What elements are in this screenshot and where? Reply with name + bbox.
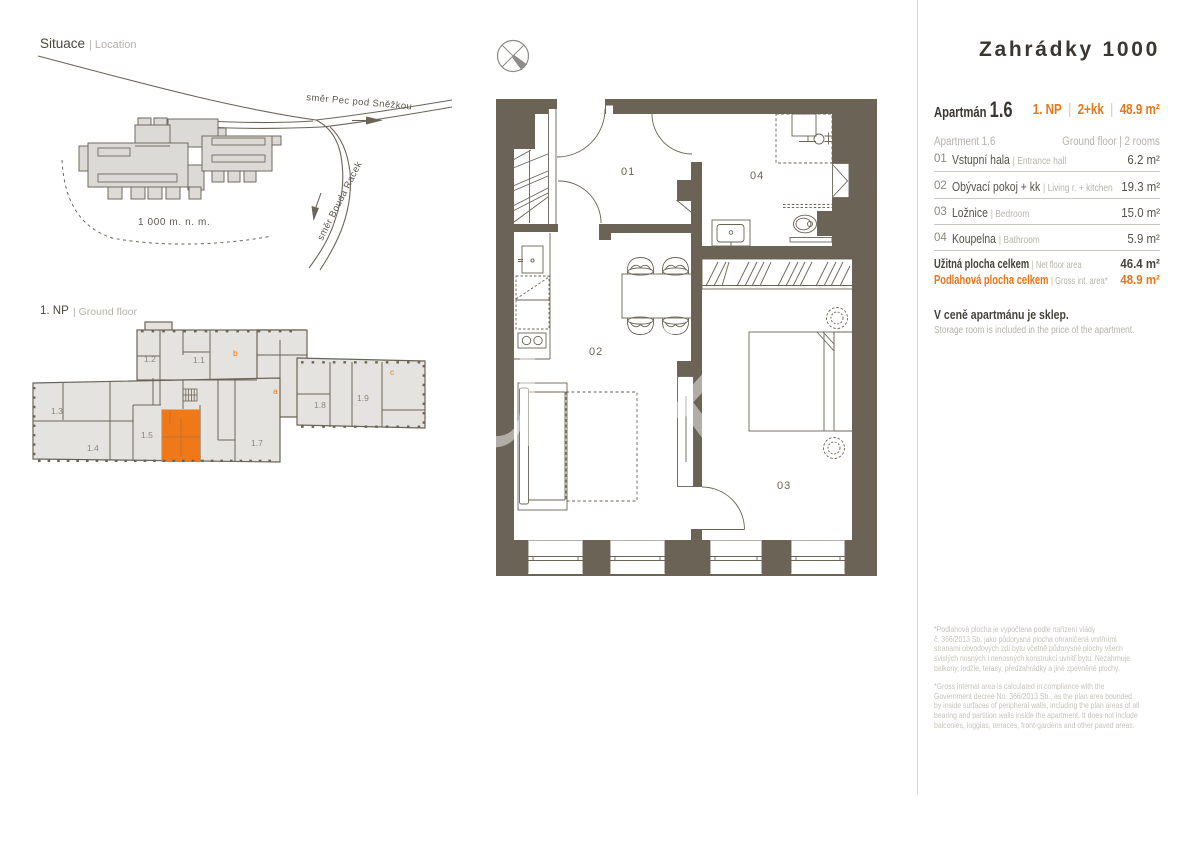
svg-text:1. NP: 1. NP bbox=[40, 305, 69, 317]
svg-text:1.7: 1.7 bbox=[251, 438, 263, 448]
svg-text:směr Bouda Racek: směr Bouda Racek bbox=[315, 160, 364, 243]
svg-text:u: u bbox=[452, 293, 547, 483]
svg-text:1.5: 1.5 bbox=[141, 430, 153, 440]
svg-text:02: 02 bbox=[589, 346, 603, 358]
svg-text:1.4: 1.4 bbox=[87, 443, 99, 453]
svg-text:1.2: 1.2 bbox=[144, 354, 156, 364]
svg-text:03: 03 bbox=[777, 480, 791, 492]
svg-text:a: a bbox=[273, 386, 278, 396]
svg-text:b: b bbox=[233, 348, 238, 358]
svg-text:04: 04 bbox=[750, 170, 764, 182]
svg-text:| Location: | Location bbox=[89, 39, 137, 51]
svg-text:| Ground floor: | Ground floor bbox=[73, 306, 138, 318]
svg-text:1 000 m. n. m.: 1 000 m. n. m. bbox=[138, 217, 210, 228]
svg-text:1.9: 1.9 bbox=[357, 393, 369, 403]
svg-text:01: 01 bbox=[621, 166, 635, 178]
svg-text:Situace: Situace bbox=[40, 36, 85, 51]
svg-text:směr Pec pod Sněžkou: směr Pec pod Sněžkou bbox=[306, 92, 413, 112]
svg-text:1.1: 1.1 bbox=[193, 355, 205, 365]
svg-text:1.8: 1.8 bbox=[314, 400, 326, 410]
svg-text:1.3: 1.3 bbox=[51, 406, 63, 416]
svg-text:k: k bbox=[645, 298, 733, 493]
